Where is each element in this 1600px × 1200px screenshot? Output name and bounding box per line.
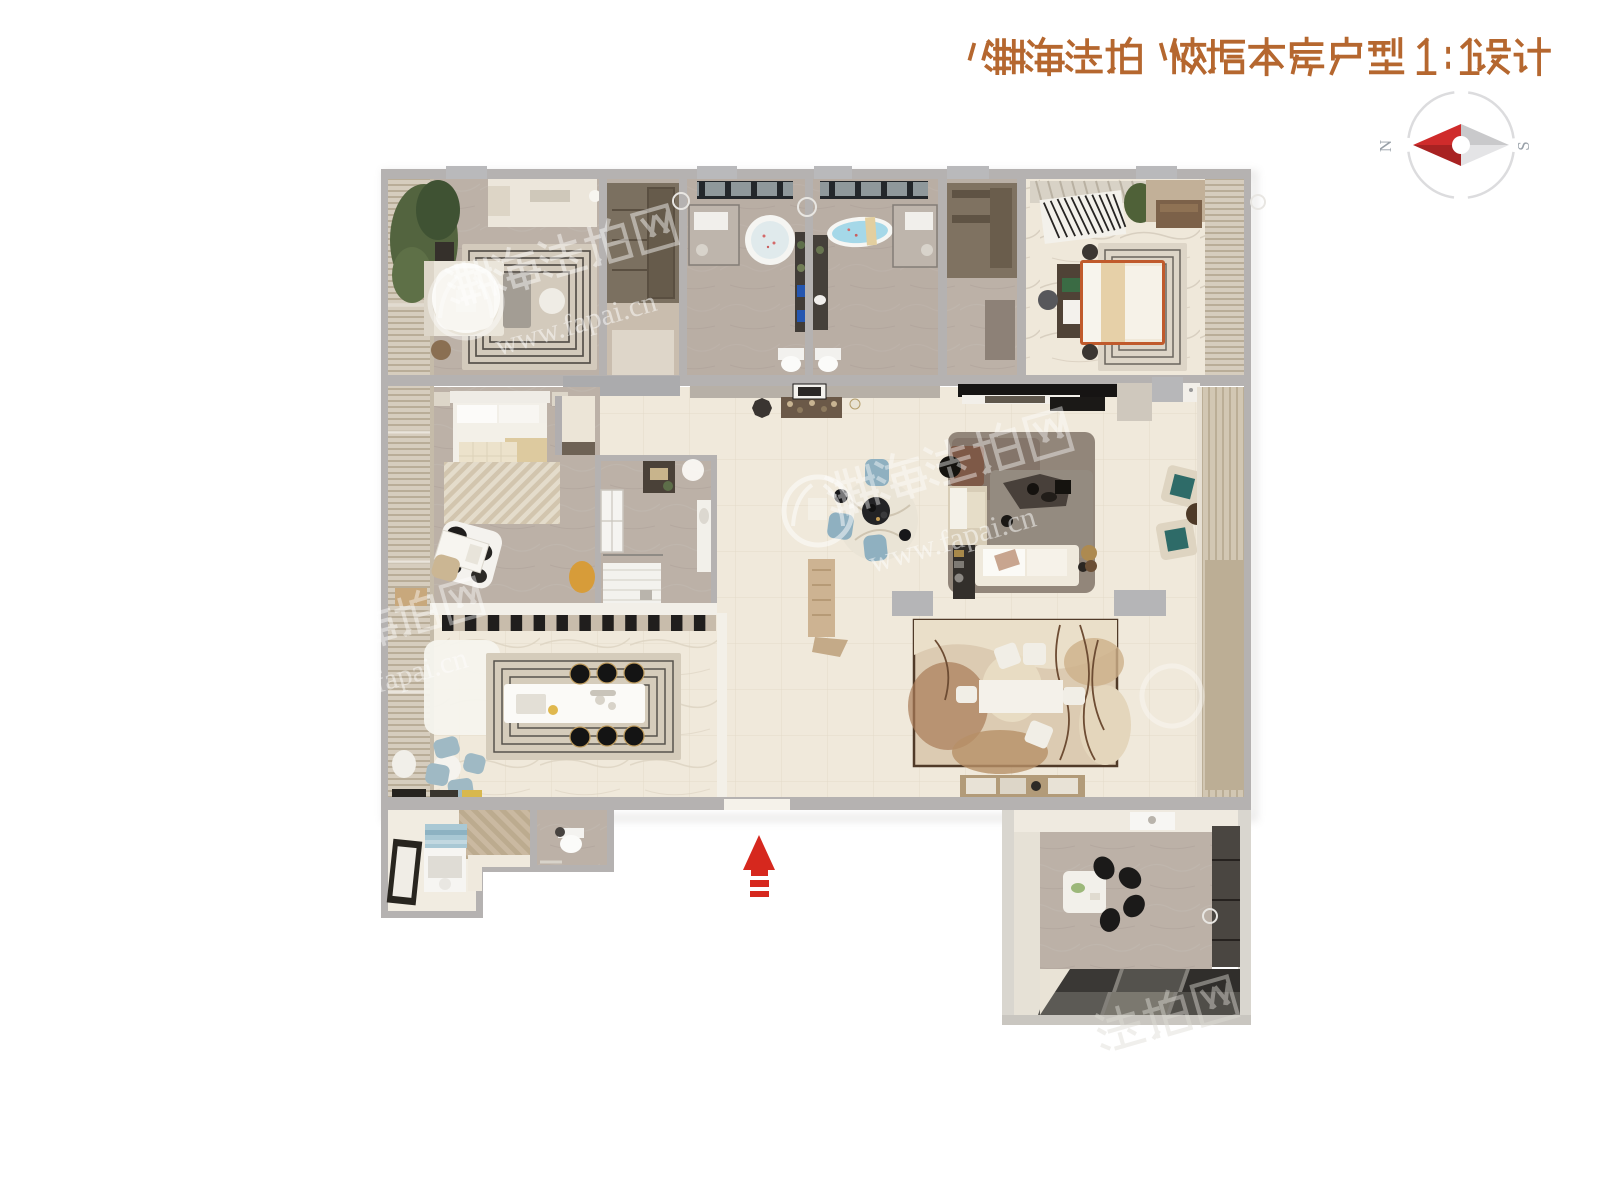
svg-text:S: S (1514, 141, 1533, 150)
svg-text:N: N (1376, 140, 1395, 152)
